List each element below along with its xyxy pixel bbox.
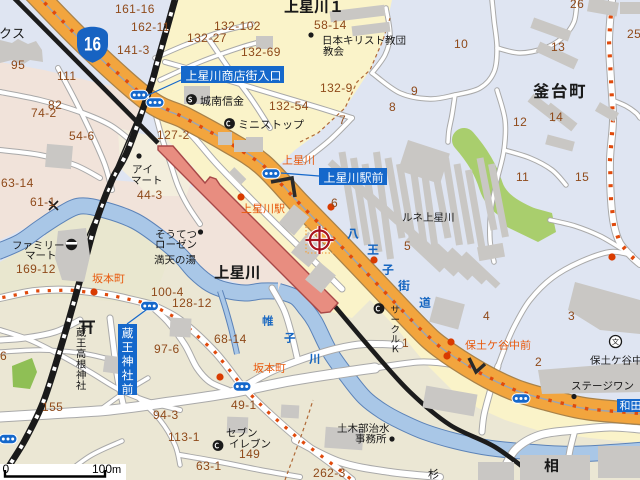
svg-text:5: 5 — [404, 239, 411, 253]
svg-text:74-2: 74-2 — [31, 106, 57, 120]
svg-text:169-12: 169-12 — [16, 262, 56, 276]
svg-text:68-14: 68-14 — [214, 332, 247, 346]
svg-text:1: 1 — [402, 336, 409, 350]
svg-text:4: 4 — [483, 309, 490, 323]
svg-text:63-14: 63-14 — [1, 176, 34, 190]
svg-text:15: 15 — [575, 170, 589, 184]
svg-text:111: 111 — [57, 69, 76, 83]
svg-text:128-12: 128-12 — [172, 296, 212, 310]
svg-text:12: 12 — [513, 115, 527, 129]
svg-text:95: 95 — [11, 58, 25, 72]
svg-text:25: 25 — [627, 27, 640, 41]
svg-text:49-1: 49-1 — [231, 398, 257, 412]
svg-text:44-3: 44-3 — [137, 188, 163, 202]
svg-text:113-1: 113-1 — [168, 430, 200, 444]
svg-text:100: 100 — [92, 462, 112, 476]
svg-text:132-27: 132-27 — [187, 31, 227, 45]
svg-text:63-1: 63-1 — [196, 459, 222, 473]
svg-text:7: 7 — [339, 113, 346, 127]
svg-text:26: 26 — [570, 0, 584, 11]
svg-text:10: 10 — [454, 37, 468, 51]
svg-text:141-3: 141-3 — [117, 43, 150, 57]
svg-text:11: 11 — [516, 170, 529, 184]
svg-text:132-54: 132-54 — [269, 99, 309, 113]
svg-text:61-1: 61-1 — [30, 195, 56, 209]
svg-text:6: 6 — [331, 196, 338, 210]
svg-text:13: 13 — [551, 40, 565, 54]
svg-text:262-3: 262-3 — [313, 466, 346, 480]
svg-text:9: 9 — [411, 84, 418, 98]
svg-text:132-9: 132-9 — [320, 81, 353, 95]
svg-text:m: m — [112, 464, 121, 476]
svg-text:127-2: 127-2 — [157, 128, 190, 142]
svg-text:16: 16 — [84, 35, 101, 56]
svg-text:54-6: 54-6 — [69, 129, 95, 143]
svg-text:161-16: 161-16 — [115, 2, 155, 16]
svg-text:58-14: 58-14 — [314, 18, 347, 32]
svg-text:14: 14 — [549, 110, 563, 124]
svg-text:2: 2 — [535, 355, 542, 369]
svg-text:6: 6 — [0, 349, 7, 363]
svg-text:132-69: 132-69 — [241, 45, 281, 59]
svg-text:94-3: 94-3 — [153, 408, 179, 422]
svg-text:149: 149 — [239, 447, 260, 461]
svg-text:97-6: 97-6 — [154, 342, 180, 356]
svg-text:0: 0 — [3, 462, 10, 476]
svg-text:3: 3 — [568, 309, 575, 323]
svg-text:162-11: 162-11 — [131, 20, 170, 34]
svg-text:8: 8 — [389, 100, 396, 114]
svg-text:155: 155 — [42, 400, 63, 414]
